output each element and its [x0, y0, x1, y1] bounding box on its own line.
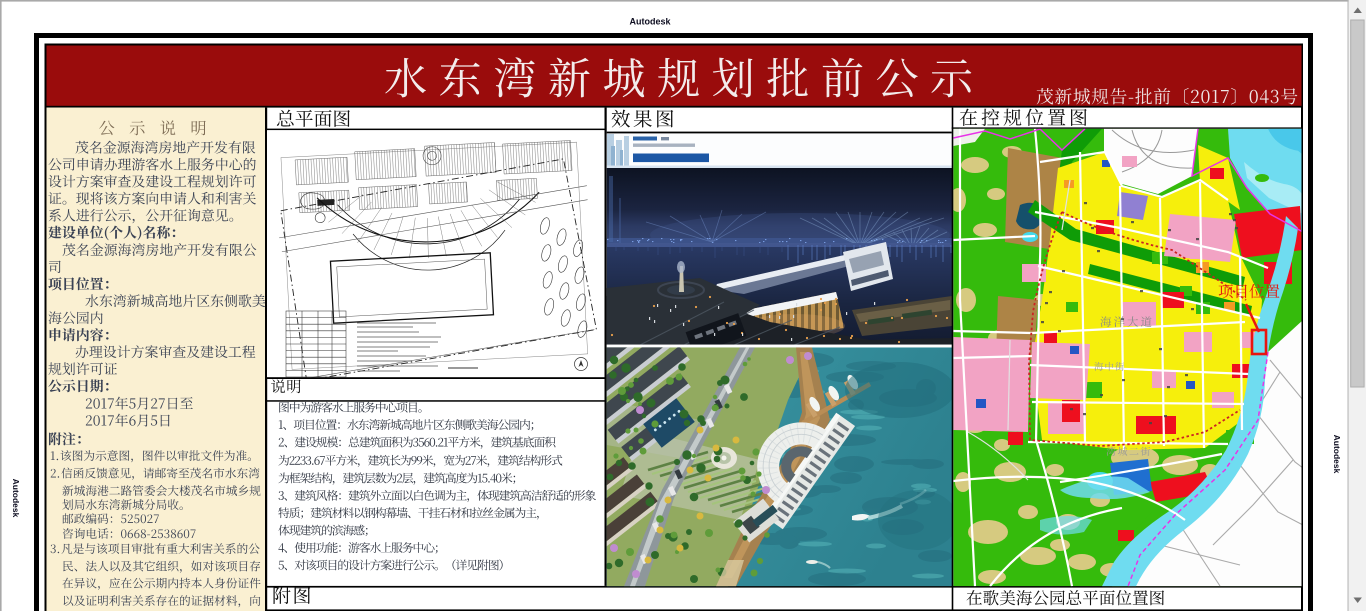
svg-text:Autodesk: Autodesk: [1332, 435, 1342, 474]
svg-text:Autodesk: Autodesk: [11, 479, 21, 518]
svg-text:Autodesk: Autodesk: [629, 17, 671, 27]
